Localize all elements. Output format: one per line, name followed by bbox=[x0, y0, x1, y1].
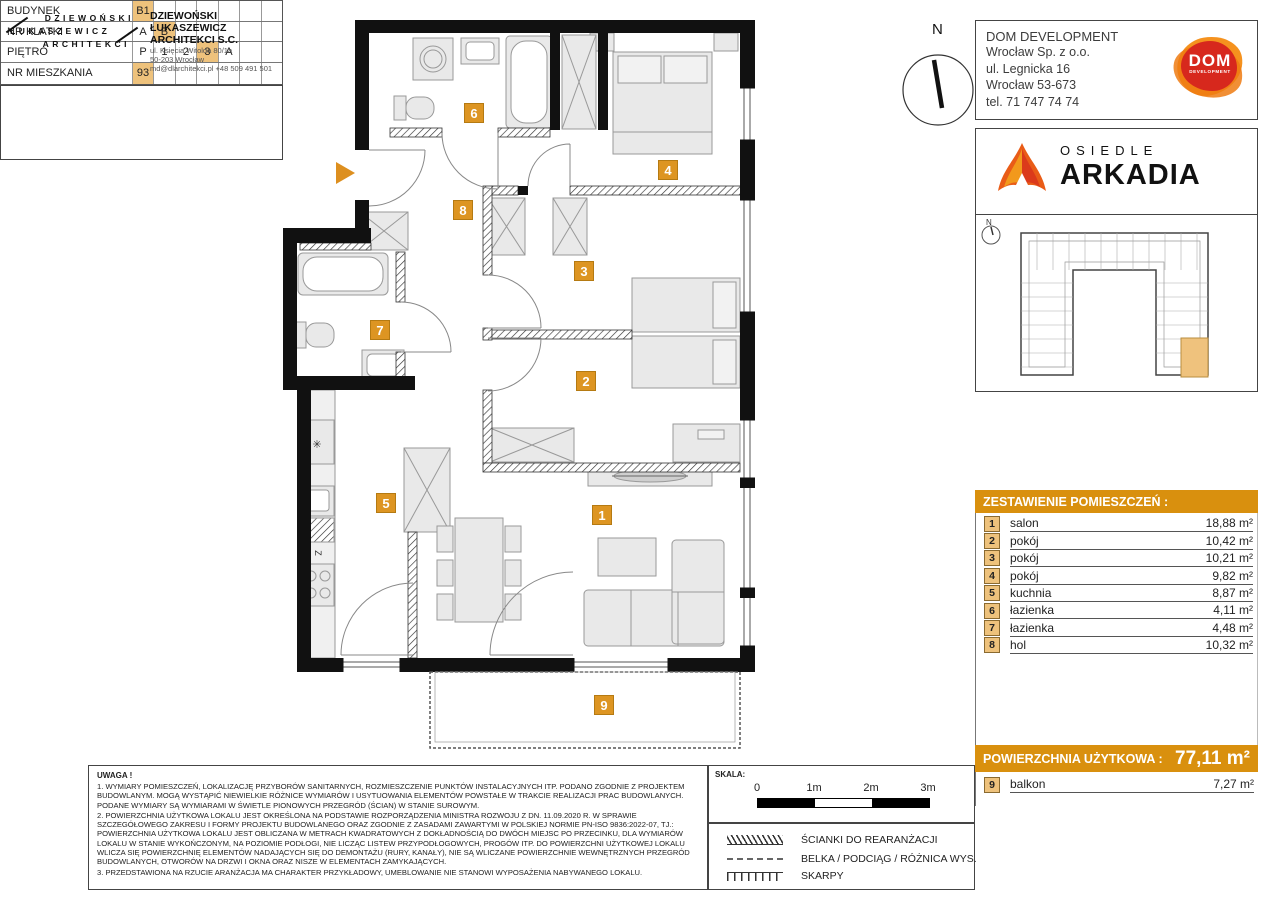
room-row: 1 salon18,88 m² bbox=[976, 515, 1257, 532]
hatch-wall-symbol bbox=[727, 835, 783, 845]
north-compass-icon: N bbox=[898, 18, 978, 136]
room-number: 1 bbox=[984, 516, 1000, 532]
room-area: 10,21 m² bbox=[1206, 551, 1253, 565]
fridge-icon: ✳ bbox=[312, 439, 321, 451]
room-number: 7 bbox=[984, 620, 1000, 636]
room-row: 8 hol10,32 m² bbox=[976, 637, 1257, 654]
room-area: 4,48 m² bbox=[1212, 621, 1253, 635]
logo-text: DOM bbox=[1173, 51, 1247, 71]
total-area-label: POWIERZCHNIA UŻYTKOWA : bbox=[983, 752, 1163, 766]
architect-details: DZIEWOŃSKI ŁUKASZEWICZ ARCHITEKCI S.C. u… bbox=[150, 10, 276, 73]
room-badge-5: 5 bbox=[376, 493, 396, 513]
room-area: 18,88 m² bbox=[1206, 516, 1253, 530]
room-row: 7 łazienka4,48 m² bbox=[976, 619, 1257, 636]
scale-bar bbox=[757, 798, 930, 808]
slope-ticks-symbol bbox=[727, 872, 783, 881]
architect-info-box: DZIEWOŃSKI ŁUKASZEWICZ ARCHITEKCI DZIEWO… bbox=[0, 85, 283, 160]
estate-name: OSIEDLE ARKADIA bbox=[1060, 143, 1201, 192]
room-row: 4 pokój9,82 m² bbox=[976, 567, 1257, 584]
rooms-list-header: ZESTAWIENIE POMIESZCZEŃ : bbox=[975, 490, 1258, 513]
room-name: salon bbox=[1010, 516, 1039, 530]
room-row: 2 pokój10,42 m² bbox=[976, 532, 1257, 549]
site-map-drawing: N bbox=[976, 215, 1257, 391]
balcony-row-container: 9 balkon7,27 m² bbox=[975, 772, 1258, 806]
room-badge-2: 2 bbox=[576, 371, 596, 391]
total-area-banner: POWIERZCHNIA UŻYTKOWA : 77,11 m² bbox=[975, 745, 1258, 772]
room-name: kuchnia bbox=[1010, 586, 1051, 600]
note-paragraph-3: 3. PRZEDSTAWIONA NA RZUCIE ARANŻACJA MA … bbox=[97, 868, 699, 877]
room-name: łazienka bbox=[1010, 603, 1054, 617]
room-area: 4,11 m² bbox=[1213, 603, 1253, 617]
scale-label: SKALA: bbox=[715, 770, 745, 779]
dishwasher-label: Z bbox=[313, 550, 323, 556]
estate-prefix: OSIEDLE bbox=[1060, 143, 1201, 158]
scale-box: SKALA: 0 1m 2m 3m bbox=[708, 765, 975, 823]
scale-tick-labels: 0 1m 2m 3m bbox=[757, 782, 928, 796]
room-row: 6 łazienka4,11 m² bbox=[976, 602, 1257, 619]
building-site-map: N bbox=[975, 214, 1258, 392]
architect-contact: md@dlarchitekci.pl +48 509 491 501 bbox=[150, 64, 276, 73]
architect-name2: ARCHITEKCI S.C. bbox=[150, 34, 276, 46]
room-area: 8,87 m² bbox=[1212, 586, 1253, 600]
estate-title: ARKADIA bbox=[1060, 159, 1201, 192]
architect-city: 50-203 Wrocław bbox=[150, 55, 276, 64]
architect-name: DZIEWOŃSKI ŁUKASZEWICZ bbox=[150, 10, 276, 34]
room-number: 5 bbox=[984, 585, 1000, 601]
note-paragraph-2: 2. POWIERZCHNIA UŻYTKOWA LOKALU JEST OKR… bbox=[97, 811, 699, 867]
notes-box: UWAGA ! 1. WYMIARY POMIESZCZEŃ, LOKALIZA… bbox=[88, 765, 708, 890]
architect-address: ul. Księcia Witolda 80/1a bbox=[150, 46, 276, 55]
room-row: 5 kuchnia8,87 m² bbox=[976, 585, 1257, 602]
room-badge-1: 1 bbox=[592, 505, 612, 525]
room-badge-3: 3 bbox=[574, 261, 594, 281]
legend-box: ŚCIANKI DO REARANŻACJI BELKA / PODCIĄG /… bbox=[708, 823, 975, 890]
room-area: 10,42 m² bbox=[1206, 534, 1253, 548]
room-number: 6 bbox=[984, 603, 1000, 619]
room-badge-7: 7 bbox=[370, 320, 390, 340]
entry-arrow-icon bbox=[336, 162, 355, 184]
logo-subtext: DEVELOPMENT bbox=[1173, 69, 1247, 74]
estate-logo-box: OSIEDLE ARKADIA bbox=[975, 128, 1258, 215]
room-number: 4 bbox=[984, 568, 1000, 584]
legend-item-beam: BELKA / PODCIĄG / RÓŻNICA WYS. bbox=[727, 853, 977, 865]
balcony-name: balkon bbox=[1010, 777, 1045, 791]
legend-item-slopes: SKARPY bbox=[727, 870, 844, 882]
room-row: 3 pokój10,21 m² bbox=[976, 550, 1257, 567]
room-name: pokój bbox=[1010, 551, 1039, 565]
room-name: pokój bbox=[1010, 534, 1039, 548]
floor-plan-drawing: ✳ Z bbox=[270, 10, 770, 760]
floor-plan-sheet: ✳ Z bbox=[0, 0, 1273, 900]
rooms-list: 1 salon18,88 m² 2 pokój10,42 m² 3 pokój1… bbox=[975, 513, 1258, 745]
room-area: 9,82 m² bbox=[1212, 569, 1253, 583]
balcony-area: 7,27 m² bbox=[1213, 777, 1254, 791]
room-name: hol bbox=[1010, 638, 1026, 652]
developer-info-box: DOM DEVELOPMENT Wrocław Sp. z o.o. ul. L… bbox=[975, 20, 1258, 120]
room-badge-6: 6 bbox=[464, 103, 484, 123]
arkadia-flame-icon bbox=[992, 141, 1052, 201]
balcony-outline bbox=[430, 672, 740, 748]
room-name: łazienka bbox=[1010, 621, 1054, 635]
balcony-number: 9 bbox=[984, 777, 1000, 793]
room-badge-8: 8 bbox=[453, 200, 473, 220]
room-number: 8 bbox=[984, 637, 1000, 653]
note-paragraph-1: 1. WYMIARY POMIESZCZEŃ, LOKALIZACJĘ PRZY… bbox=[97, 782, 699, 810]
compass-north-label: N bbox=[932, 21, 943, 38]
dashed-line-symbol bbox=[727, 858, 783, 860]
balcony-row: 9 balkon7,27 m² bbox=[976, 776, 1258, 793]
room-number: 3 bbox=[984, 550, 1000, 566]
architect-logo: DZIEWOŃSKI ŁUKASZEWICZ ARCHITEKCI bbox=[10, 12, 140, 62]
room-area: 10,32 m² bbox=[1206, 638, 1253, 652]
legend-item-rearrangeable-walls: ŚCIANKI DO REARANŻACJI bbox=[727, 834, 938, 846]
room-badge-9: 9 bbox=[594, 695, 614, 715]
highlighted-unit bbox=[1181, 338, 1208, 377]
room-number: 2 bbox=[984, 533, 1000, 549]
row-label: NR MIESZKANIA bbox=[1, 63, 132, 84]
notes-title: UWAGA ! bbox=[97, 771, 699, 780]
room-name: pokój bbox=[1010, 569, 1039, 583]
room-badge-4: 4 bbox=[658, 160, 678, 180]
total-area-value: 77,11 m² bbox=[1175, 748, 1250, 770]
dom-development-logo: DOM DEVELOPMENT bbox=[1173, 35, 1247, 101]
